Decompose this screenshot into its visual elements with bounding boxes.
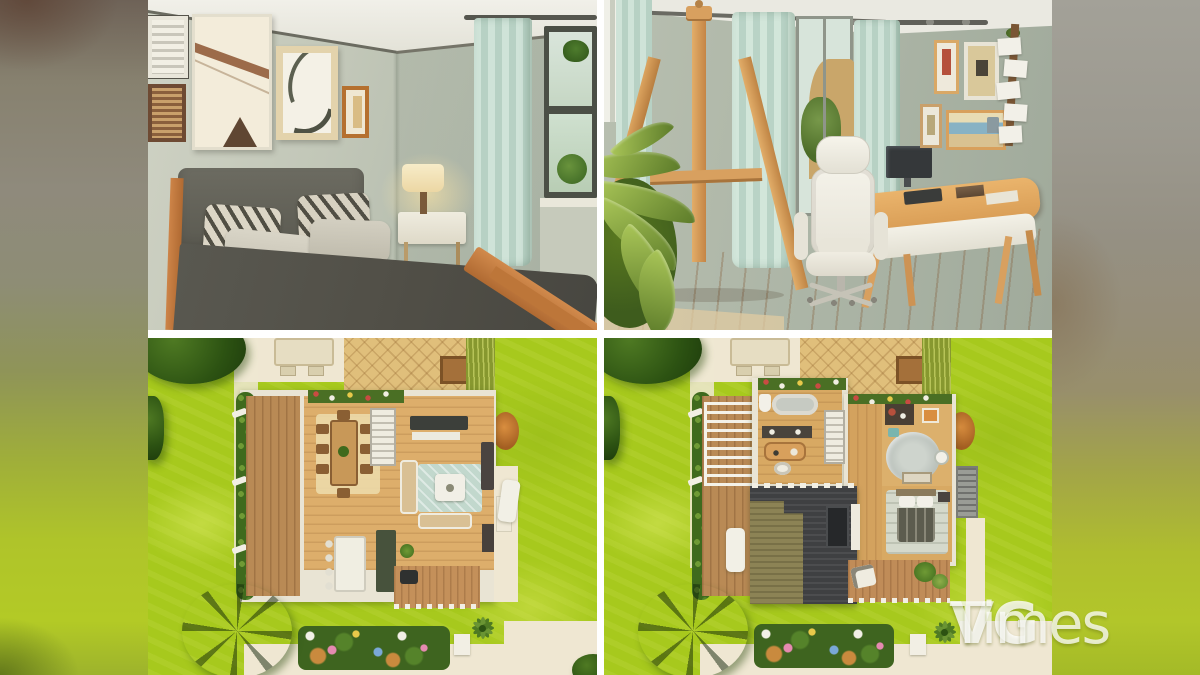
toilet <box>759 394 771 412</box>
desk-chair <box>774 462 791 475</box>
ground-floor-plan-screenshot <box>148 338 597 675</box>
wall-art-small-frame <box>342 86 369 138</box>
nightstand <box>398 212 466 244</box>
easel-clamp <box>686 6 712 21</box>
outdoor-table <box>730 338 790 366</box>
bed-pillow <box>917 496 933 507</box>
outdoor-table <box>274 338 334 366</box>
bar-stools <box>324 538 334 590</box>
office-chair-casters <box>802 294 882 306</box>
computer-monitor <box>886 146 932 178</box>
wall-art-seascape <box>946 110 1006 150</box>
balcony-plant <box>932 574 948 589</box>
art-bar <box>353 96 362 128</box>
hall-console <box>482 524 494 552</box>
orange-shrub <box>492 412 519 450</box>
organizer-card <box>997 37 1021 56</box>
round-sink <box>934 450 949 465</box>
roof-railing <box>752 483 856 488</box>
kitchen-cabinet <box>376 530 396 592</box>
roof-edge-panel <box>851 504 860 550</box>
floor-plant <box>400 544 414 558</box>
lamp-shade <box>402 164 444 192</box>
wall-art-shutter-frame <box>148 16 188 78</box>
path-mat <box>910 634 926 655</box>
dining-chair <box>316 424 329 434</box>
balcony-railing <box>848 598 950 603</box>
dining-chair <box>316 444 329 454</box>
organizer-card <box>1003 103 1027 122</box>
table-centerpiece <box>338 446 349 457</box>
piano <box>481 442 494 490</box>
spiral-tree <box>182 584 292 675</box>
window-planter-flowers <box>848 394 952 404</box>
mint-curtain <box>474 18 532 266</box>
nightstand <box>938 492 950 502</box>
wall-art-striped-frame <box>148 84 186 142</box>
monitor-stand <box>904 178 911 187</box>
screenshot-grid <box>148 0 1052 675</box>
staircase <box>824 410 845 464</box>
left-blur-band <box>0 0 149 675</box>
lamp-stem <box>420 192 427 214</box>
window-planter-flowers <box>758 378 846 390</box>
wall-art-square <box>964 42 999 100</box>
side-roof-panel <box>956 466 978 518</box>
bed-pillow <box>899 496 915 507</box>
palm-tree-view <box>563 40 589 62</box>
tree <box>148 396 164 460</box>
sofa <box>418 513 472 529</box>
pergola-slats <box>704 402 758 486</box>
desk <box>764 442 806 461</box>
window-planter-flowers <box>308 390 404 403</box>
side-deck <box>246 396 304 596</box>
wall-art-swirl-frame <box>276 46 338 140</box>
tv-console <box>410 416 468 430</box>
bathroom-counter <box>762 426 812 438</box>
outdoor-chair <box>736 366 752 376</box>
window-pane <box>549 32 592 106</box>
window-sill <box>540 198 597 207</box>
right-blur-band <box>1052 0 1200 675</box>
bed-blanket <box>897 508 935 542</box>
lounge-chair <box>726 528 745 572</box>
flower-bed <box>754 624 894 668</box>
dresser <box>902 472 932 484</box>
easel-knob <box>695 0 703 8</box>
organizer-card <box>1003 59 1027 78</box>
path-mat <box>454 634 470 655</box>
flower-bed <box>298 626 450 670</box>
dining-chair <box>337 488 350 498</box>
organizer-card <box>999 125 1023 143</box>
wall-art-small <box>920 104 942 148</box>
sofa <box>400 460 418 514</box>
art-triangle <box>223 117 257 147</box>
wall-art-abstract-large <box>192 14 272 150</box>
outdoor-chair <box>764 366 780 376</box>
kitchen-island <box>334 536 366 592</box>
watermark-times: Times <box>950 594 1109 654</box>
media-cabinet <box>412 432 460 440</box>
greenery-view <box>557 154 587 184</box>
patio-planter-square <box>896 356 925 384</box>
office-chair-arm <box>794 212 808 260</box>
bathtub <box>772 394 818 415</box>
vgtimes-watermark: VGTimes <box>950 594 1200 664</box>
grill <box>400 570 418 584</box>
bathroom-shelf <box>885 404 914 425</box>
easel-mast <box>692 10 706 262</box>
patio-planter-square <box>440 356 469 384</box>
collage-canvas: VGTimes <box>0 0 1200 675</box>
bed-headboard <box>896 489 936 496</box>
wall-art-portrait <box>934 40 959 94</box>
office-chair-arm <box>874 212 888 260</box>
home-office-screenshot <box>604 0 1052 330</box>
office-chair-headrest <box>816 136 870 174</box>
bath-accessory <box>888 428 899 437</box>
tree <box>604 396 620 460</box>
table-decor <box>446 484 454 492</box>
outdoor-chair <box>280 366 296 376</box>
roof-window <box>826 506 849 548</box>
window-pane <box>549 114 592 192</box>
organizer-card <box>996 81 1021 100</box>
dining-chair <box>337 410 350 420</box>
staircase <box>370 408 396 466</box>
bedroom-window <box>544 26 597 198</box>
wall-art <box>922 408 939 423</box>
dining-chair <box>316 464 329 474</box>
outdoor-chair <box>308 366 324 376</box>
office-chair-seat <box>806 252 876 276</box>
spiral-tree <box>638 584 748 675</box>
bedroom-screenshot <box>148 0 597 330</box>
khaki-roof-section <box>750 501 803 604</box>
